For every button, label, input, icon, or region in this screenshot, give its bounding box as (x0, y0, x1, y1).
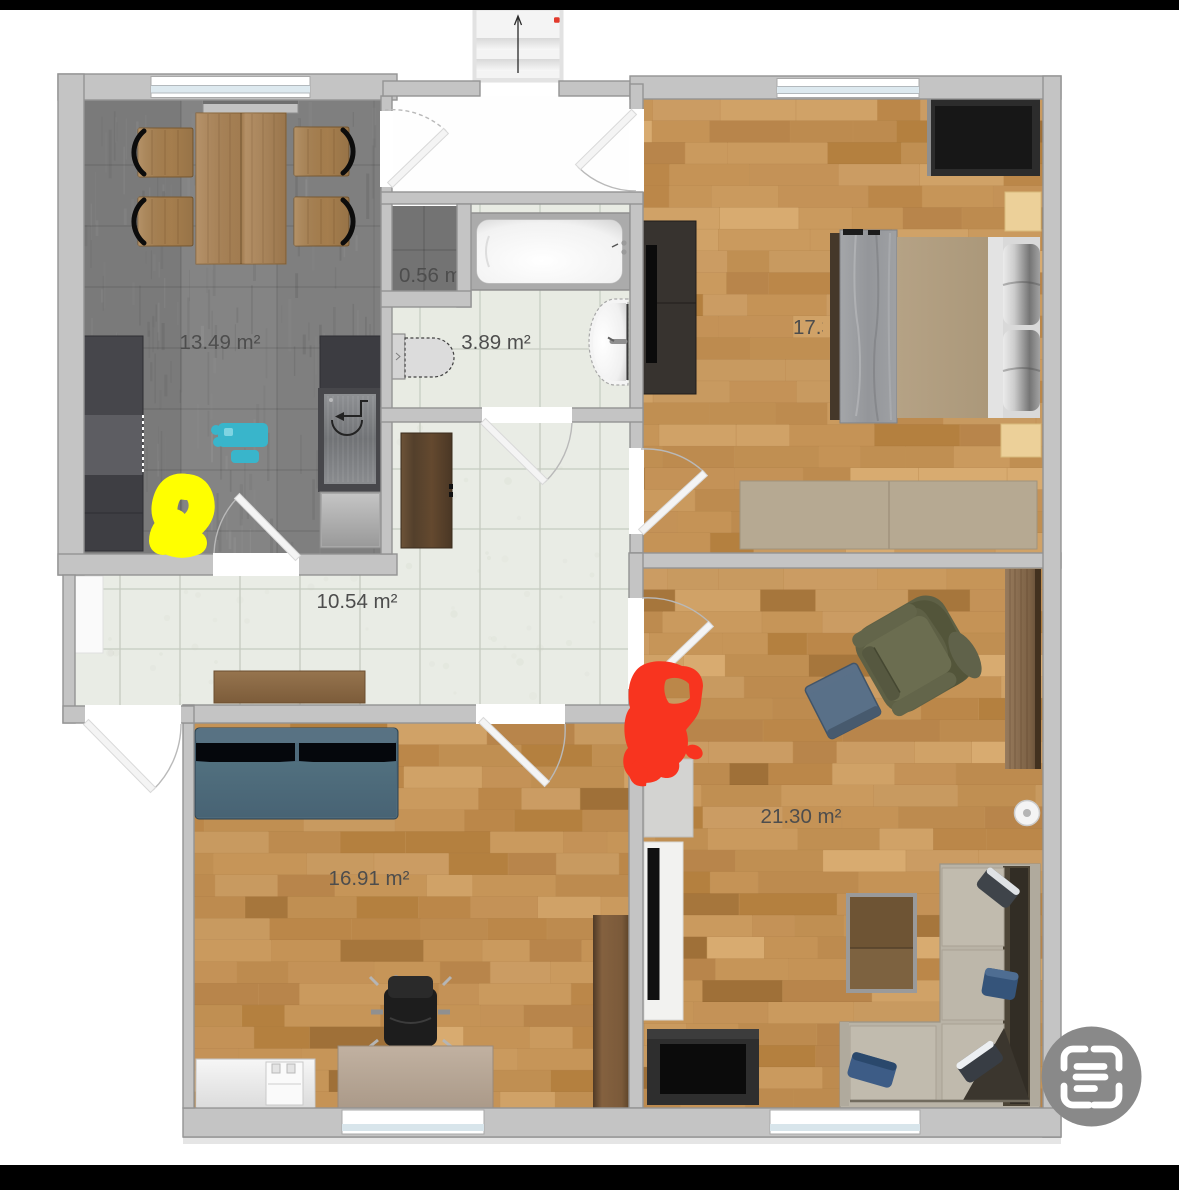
svg-text:21.30 m²: 21.30 m² (761, 805, 842, 828)
svg-text:16.91 m²: 16.91 m² (329, 867, 410, 890)
svg-text:10.54 m²: 10.54 m² (317, 590, 398, 613)
svg-text:3.89 m²: 3.89 m² (461, 331, 531, 354)
svg-text:13.49 m²: 13.49 m² (180, 331, 261, 354)
